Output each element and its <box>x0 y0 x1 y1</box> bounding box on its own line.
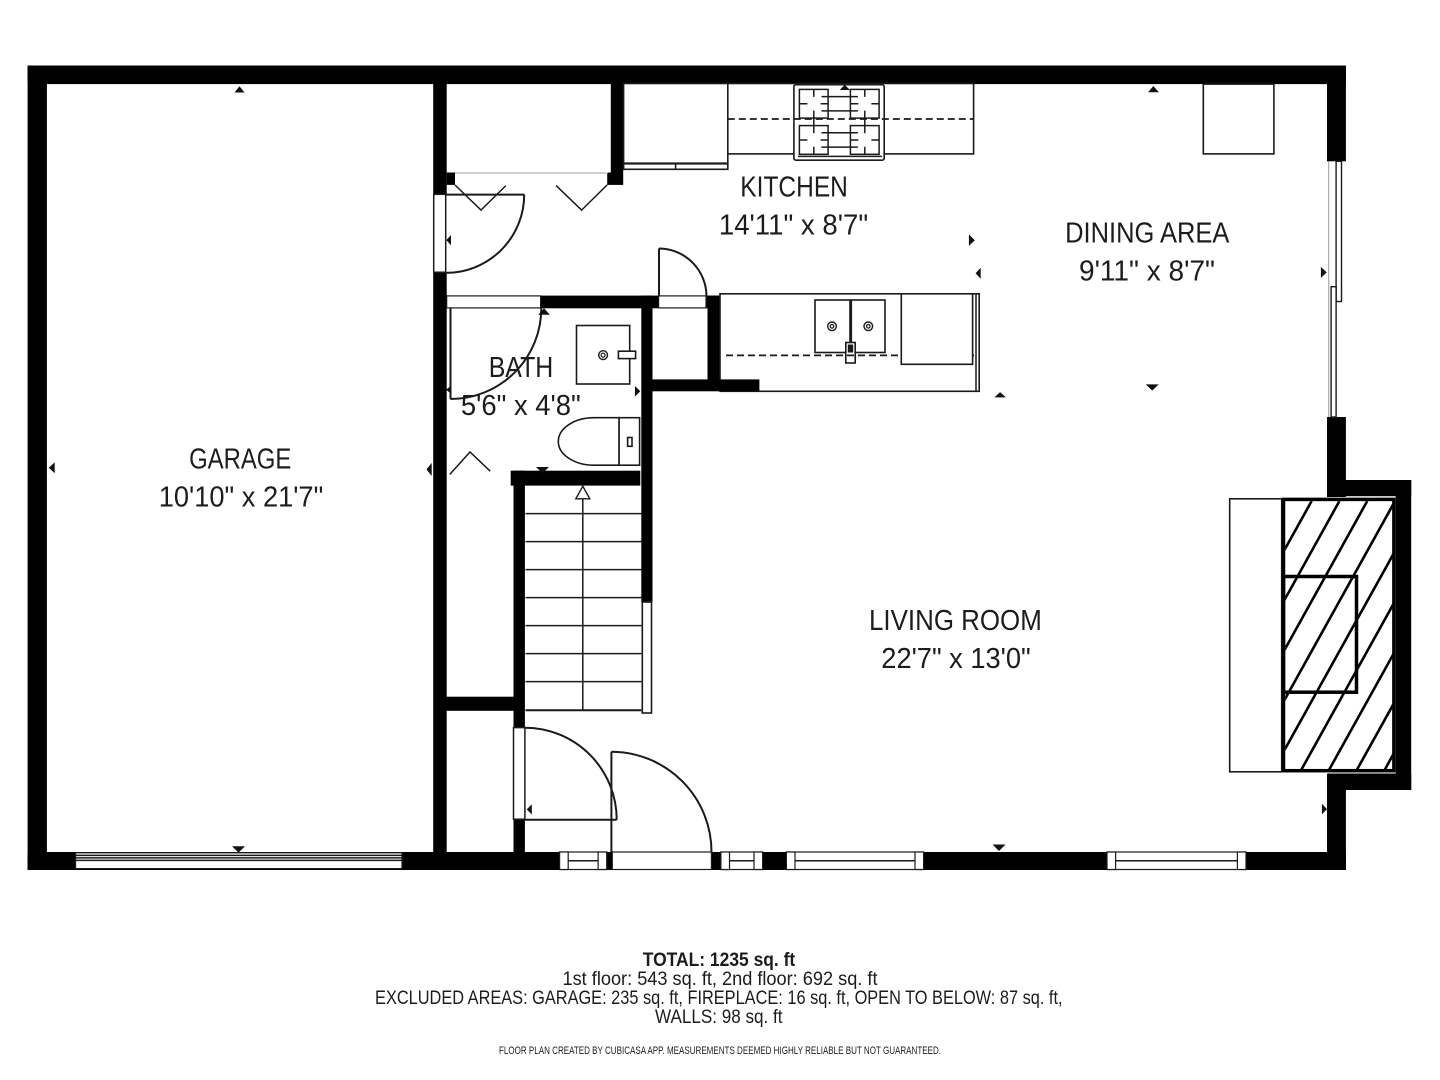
svg-text:EXCLUDED AREAS: GARAGE: 235 sq: EXCLUDED AREAS: GARAGE: 235 sq. ft, FIRE… <box>375 988 1063 1009</box>
svg-text:14'11" x 8'7": 14'11" x 8'7" <box>719 209 868 241</box>
svg-text:DINING AREA: DINING AREA <box>1065 218 1230 250</box>
svg-text:BATH: BATH <box>489 352 554 384</box>
svg-text:FLOOR PLAN CREATED BY CUBICASA: FLOOR PLAN CREATED BY CUBICASA APP. MEAS… <box>499 1045 941 1057</box>
svg-text:WALLS: 98 sq. ft: WALLS: 98 sq. ft <box>655 1007 783 1028</box>
svg-text:22'7" x 13'0": 22'7" x 13'0" <box>881 643 1030 675</box>
svg-text:TOTAL: 1235 sq. ft: TOTAL: 1235 sq. ft <box>643 950 796 971</box>
svg-text:GARAGE: GARAGE <box>189 443 291 475</box>
svg-text:LIVING ROOM: LIVING ROOM <box>869 605 1042 637</box>
svg-text:KITCHEN: KITCHEN <box>740 171 848 203</box>
svg-text:9'11" x 8'7": 9'11" x 8'7" <box>1079 256 1215 288</box>
svg-text:10'10" x 21'7": 10'10" x 21'7" <box>159 481 324 513</box>
svg-text:5'6" x 4'8": 5'6" x 4'8" <box>461 390 581 422</box>
svg-text:1st floor: 543 sq. ft, 2nd flo: 1st floor: 543 sq. ft, 2nd floor: 692 sq… <box>563 969 879 990</box>
